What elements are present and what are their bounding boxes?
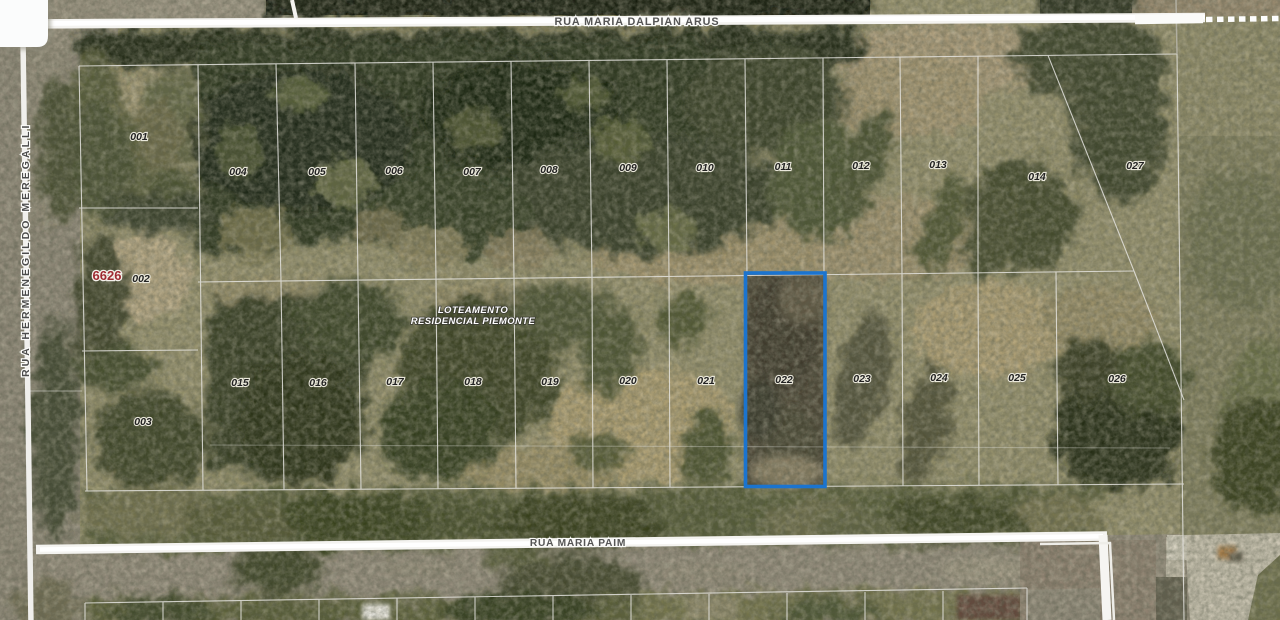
svg-text:014: 014 [1028, 171, 1046, 183]
svg-text:020: 020 [619, 375, 637, 387]
svg-text:003: 003 [134, 416, 152, 428]
svg-text:004: 004 [229, 166, 247, 178]
svg-text:015: 015 [231, 377, 249, 389]
svg-text:023: 023 [853, 373, 871, 385]
svg-text:LOTEAMENTO: LOTEAMENTO [438, 305, 509, 316]
svg-text:006: 006 [385, 165, 403, 177]
svg-text:027: 027 [1126, 160, 1145, 172]
svg-text:005: 005 [308, 166, 326, 178]
svg-text:009: 009 [619, 162, 637, 174]
svg-text:021: 021 [697, 375, 715, 387]
svg-text:011: 011 [775, 161, 792, 173]
svg-text:RUA MARIA PAIM: RUA MARIA PAIM [530, 538, 626, 549]
svg-text:RUA MARIA DALPIAN ARUS: RUA MARIA DALPIAN ARUS [555, 16, 720, 28]
svg-text:002: 002 [132, 273, 150, 285]
svg-text:008: 008 [540, 164, 558, 176]
svg-text:018: 018 [464, 376, 482, 388]
svg-text:001: 001 [130, 131, 148, 143]
svg-text:012: 012 [852, 160, 870, 172]
svg-text:026: 026 [1108, 373, 1126, 385]
svg-text:024: 024 [930, 372, 948, 384]
svg-text:6626: 6626 [93, 268, 122, 283]
svg-text:019: 019 [541, 376, 559, 388]
svg-text:017: 017 [386, 376, 405, 388]
svg-text:013: 013 [929, 159, 947, 171]
svg-text:022: 022 [775, 374, 793, 386]
svg-text:010: 010 [696, 162, 714, 174]
svg-text:016: 016 [309, 377, 327, 389]
svg-text:RESIDENCIAL PIEMONTE: RESIDENCIAL PIEMONTE [411, 316, 536, 327]
svg-text:025: 025 [1008, 372, 1026, 384]
svg-text:007: 007 [463, 166, 482, 178]
